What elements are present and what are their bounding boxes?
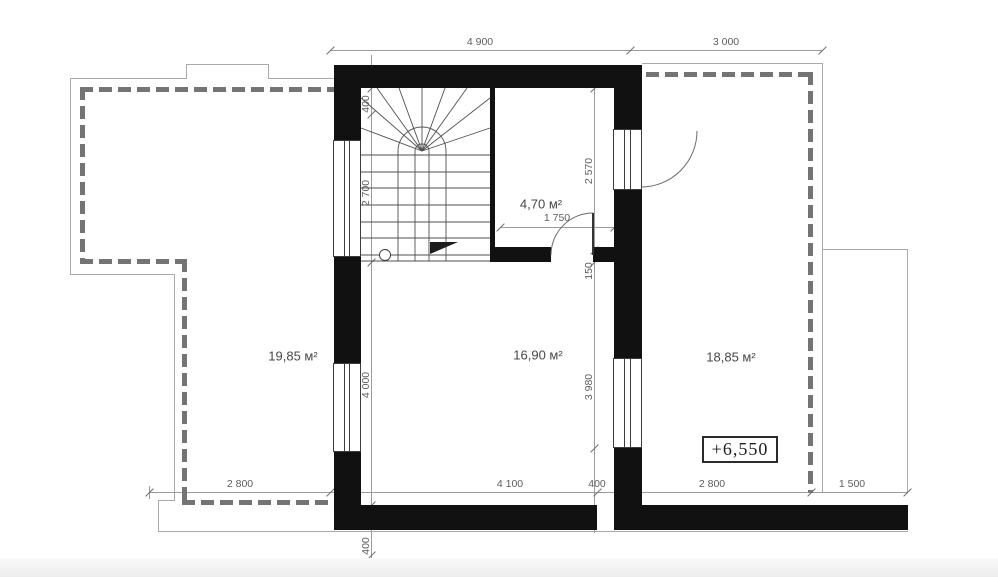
dim-bottom-1500: 1 500: [839, 478, 865, 490]
dim-door-1750: 1 750: [544, 212, 570, 224]
dim-bottom-2800a: 2 800: [227, 478, 253, 490]
room-area-left-terrace: 19,85 м²: [268, 349, 317, 364]
dim-bottom-2800b: 2 800: [699, 478, 725, 490]
level-mark-value: +6,550: [712, 439, 769, 460]
dim-stair-2700: 2 700: [360, 180, 372, 206]
floor-plan: 4 900 3 000 2 800 4 100 400 2 800 1 500 …: [0, 0, 998, 577]
dim-stair-400: 400: [360, 95, 372, 113]
door-arc-right-room: [641, 131, 697, 187]
dim-right-3980: 3 980: [583, 374, 595, 400]
door-swing-arcs: [0, 0, 998, 577]
room-area-wc: 4,70 м²: [520, 197, 562, 212]
dim-jog-150: 150: [583, 262, 595, 280]
level-mark: +6,550: [702, 436, 778, 463]
dim-top-4900: 4 900: [467, 36, 493, 48]
dim-top-3000: 3 000: [713, 36, 739, 48]
room-area-hall: 16,90 м²: [513, 348, 562, 363]
dim-bottom-4100: 4 100: [497, 478, 523, 490]
room-area-right-terrace: 18,85 м²: [706, 350, 755, 365]
dim-bottom-wall-400: 400: [360, 537, 372, 555]
dim-wc-2570: 2 570: [583, 158, 595, 184]
bottom-band: [0, 558, 998, 577]
dim-left-4000: 4 000: [360, 372, 372, 398]
dim-bottom-400: 400: [588, 478, 606, 490]
